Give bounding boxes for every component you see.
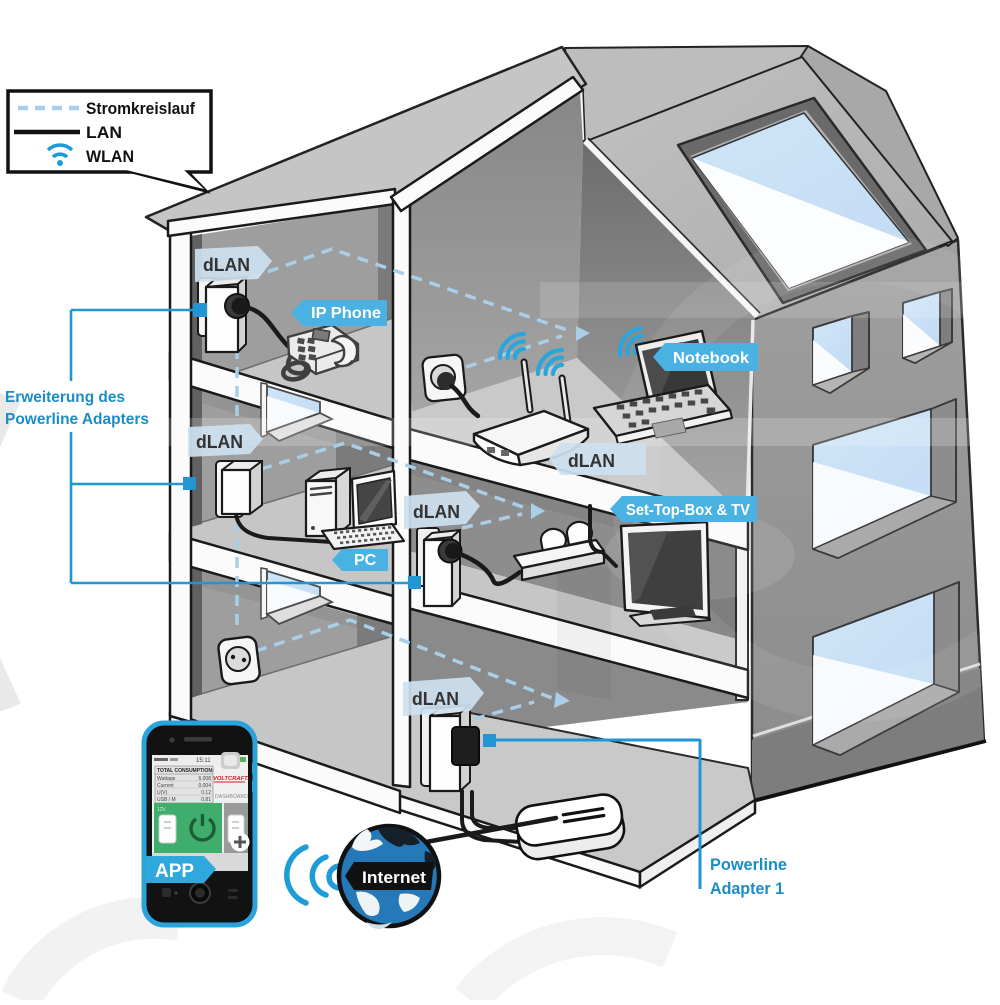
svg-text:Powerline: Powerline [710,856,787,874]
svg-text:PC: PC [354,552,377,569]
svg-text:15:11: 15:11 [196,758,211,764]
svg-text:Stromkreislauf: Stromkreislauf [86,100,195,118]
svg-text:12V: 12V [157,807,167,813]
svg-text:dLAN: dLAN [568,450,615,471]
svg-text:Notebook: Notebook [673,350,749,367]
svg-text:LAN: LAN [86,124,122,142]
svg-text:IP Phone: IP Phone [311,305,381,322]
svg-text:VOLTCRAFT.: VOLTCRAFT. [213,776,249,782]
svg-text:dLAN: dLAN [196,431,243,452]
svg-text:Powerline Adapters: Powerline Adapters [5,411,149,428]
svg-text:Erweiterung des: Erweiterung des [5,389,125,406]
svg-text:Adapter 1: Adapter 1 [710,880,784,898]
svg-text:DASHBOARD: DASHBOARD [215,794,248,800]
svg-text:APP: APP [155,861,194,882]
svg-text:Internet: Internet [362,868,426,887]
svg-text:WLAN: WLAN [86,148,134,166]
svg-text:Set-Top-Box & TV: Set-Top-Box & TV [626,502,750,519]
svg-text:0.81: 0.81 [201,797,211,803]
svg-text:USB / M: USB / M [157,797,176,803]
svg-text:TOTAL CONSUMPTION:: TOTAL CONSUMPTION: [157,768,214,774]
svg-text:dLAN: dLAN [412,688,459,709]
svg-text:dLAN: dLAN [413,501,460,522]
svg-text:dLAN: dLAN [203,254,250,275]
